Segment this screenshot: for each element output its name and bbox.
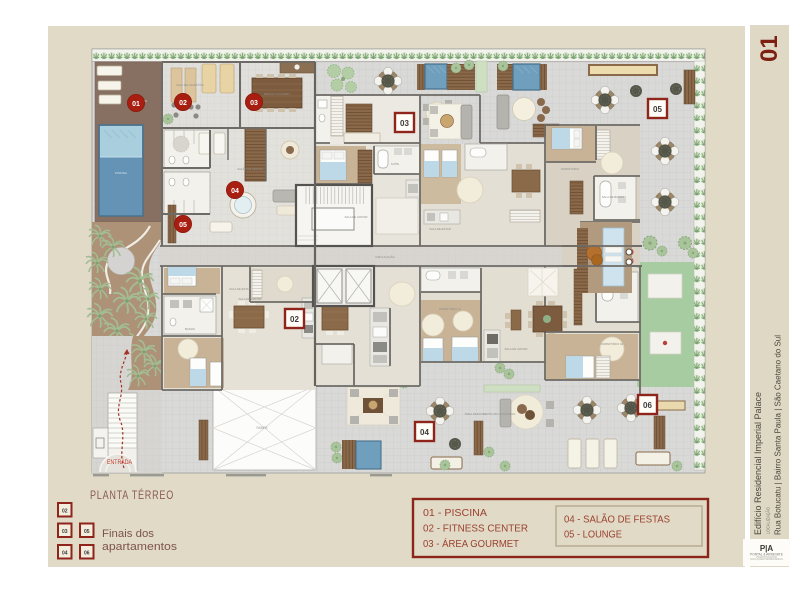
svg-text:03: 03 (250, 100, 258, 107)
svg-text:05 - LOUNGE: 05 - LOUNGE (564, 529, 622, 541)
svg-text:04: 04 (231, 188, 239, 195)
svg-text:SALA DE JANTAR: SALA DE JANTAR (344, 215, 367, 219)
svg-text:06: 06 (84, 551, 90, 557)
svg-text:apartamentos: apartamentos (102, 541, 178, 553)
svg-text:PORTAL & ARREVATE: PORTAL & ARREVATE (750, 553, 783, 557)
svg-text:06: 06 (643, 401, 652, 410)
svg-text:04 - SALÃO DE FESTAS: 04 - SALÃO DE FESTAS (564, 513, 670, 526)
svg-text:SALA DE ESTAR: SALA DE ESTAR (429, 227, 451, 231)
svg-text:02: 02 (290, 315, 299, 324)
svg-text:03 - ÁREA GOURMET: 03 - ÁREA GOURMET (423, 537, 520, 550)
svg-text:03: 03 (62, 529, 68, 535)
svg-text:SALA DE JANTAR: SALA DE JANTAR (504, 347, 527, 351)
svg-text:CIRCULAÇÃO: CIRCULAÇÃO (375, 254, 395, 259)
svg-text:05: 05 (179, 222, 187, 229)
svg-text:01: 01 (756, 35, 783, 62)
svg-text:SUÍTE: SUÍTE (391, 162, 399, 166)
svg-text:05: 05 (653, 105, 662, 114)
svg-text:ÁREA DESCOBERTA USO EXCLUSIVO: ÁREA DESCOBERTA USO EXCLUSIVO (465, 412, 517, 416)
svg-text:ESPAÇO GOURMET: ESPAÇO GOURMET (264, 92, 291, 96)
svg-text:02: 02 (62, 509, 68, 515)
svg-text:03: 03 (400, 119, 409, 128)
svg-text:ENTRADA: ENTRADA (107, 459, 133, 466)
svg-text:01 - PISCINA: 01 - PISCINA (423, 507, 487, 519)
svg-text:DORMITÓRIO 01: DORMITÓRIO 01 (439, 306, 462, 311)
svg-text:Edifício Residencial Imperial: Edifício Residencial Imperial Palace (753, 392, 764, 535)
svg-text:DORMITÓRIO: DORMITÓRIO (561, 166, 580, 171)
svg-text:04: 04 (420, 428, 429, 437)
svg-text:SALA DE JANTAR: SALA DE JANTAR (238, 297, 261, 301)
svg-text:PLANTA TÉRREO: PLANTA TÉRREO (90, 487, 174, 502)
svg-text:01: 01 (132, 101, 140, 108)
svg-text:BANHO: BANHO (185, 327, 196, 331)
svg-text:05: 05 (84, 529, 90, 535)
svg-text:PISCINA: PISCINA (115, 171, 127, 175)
svg-text:02: 02 (179, 100, 187, 107)
svg-text:SALA DE GINÁSTICA: SALA DE GINÁSTICA (176, 83, 204, 87)
svg-text:DORMITÓRIO 02: DORMITÓRIO 02 (601, 341, 624, 346)
svg-text:Finais dos: Finais dos (102, 528, 155, 540)
svg-text:LOCALIZAÇÃO: LOCALIZAÇÃO (766, 506, 771, 534)
svg-text:SALA DE BANHO: SALA DE BANHO (602, 195, 625, 199)
svg-text:Rua Botucatu | Bairro Santa Pa: Rua Botucatu | Bairro Santa Paula | São … (774, 335, 783, 535)
svg-text:SALÃO DE FESTAS: SALÃO DE FESTAS (237, 166, 263, 171)
svg-text:RAMPA: RAMPA (256, 426, 268, 430)
svg-text:04: 04 (62, 551, 68, 557)
svg-text:SALA DE ESTAR: SALA DE ESTAR (229, 287, 251, 291)
svg-text:02 - FITNESS CENTER: 02 - FITNESS CENTER (423, 523, 528, 535)
